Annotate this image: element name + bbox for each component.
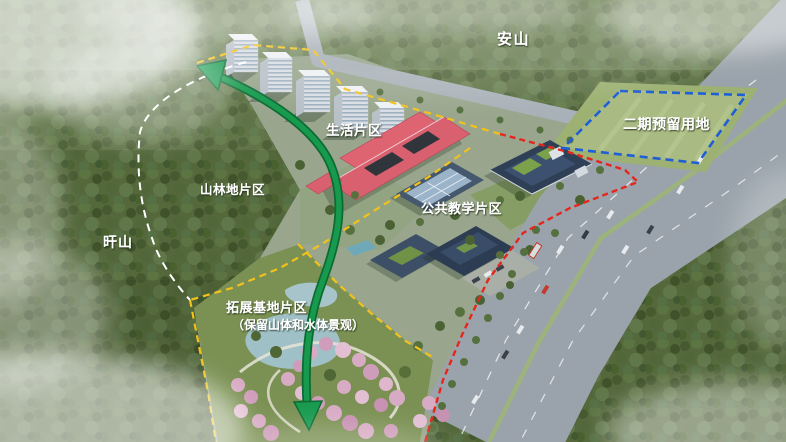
site-plan-rendering: 安山 二期预留用地 生活片区 山林地片区 旰山 公共教学片区 拓展基地片区 （保… — [0, 0, 786, 442]
label-teaching-zone: 公共教学片区 — [421, 201, 502, 217]
label-living-zone: 生活片区 — [326, 122, 382, 139]
label-expansion-zone-note: （保留山体和水体景观） — [232, 317, 364, 332]
label-expansion-zone: 拓展基地片区 — [226, 300, 307, 316]
label-forest-zone: 山林地片区 — [200, 182, 265, 197]
campus-masterplan-aerial-view: 安山 二期预留用地 生活片区 山林地片区 旰山 公共教学片区 拓展基地片区 （保… — [0, 0, 786, 442]
label-ganshan-hill: 旰山 — [103, 235, 133, 251]
label-phase2-reserved-land: 二期预留用地 — [623, 116, 710, 133]
label-anshan-hill: 安山 — [497, 30, 530, 48]
